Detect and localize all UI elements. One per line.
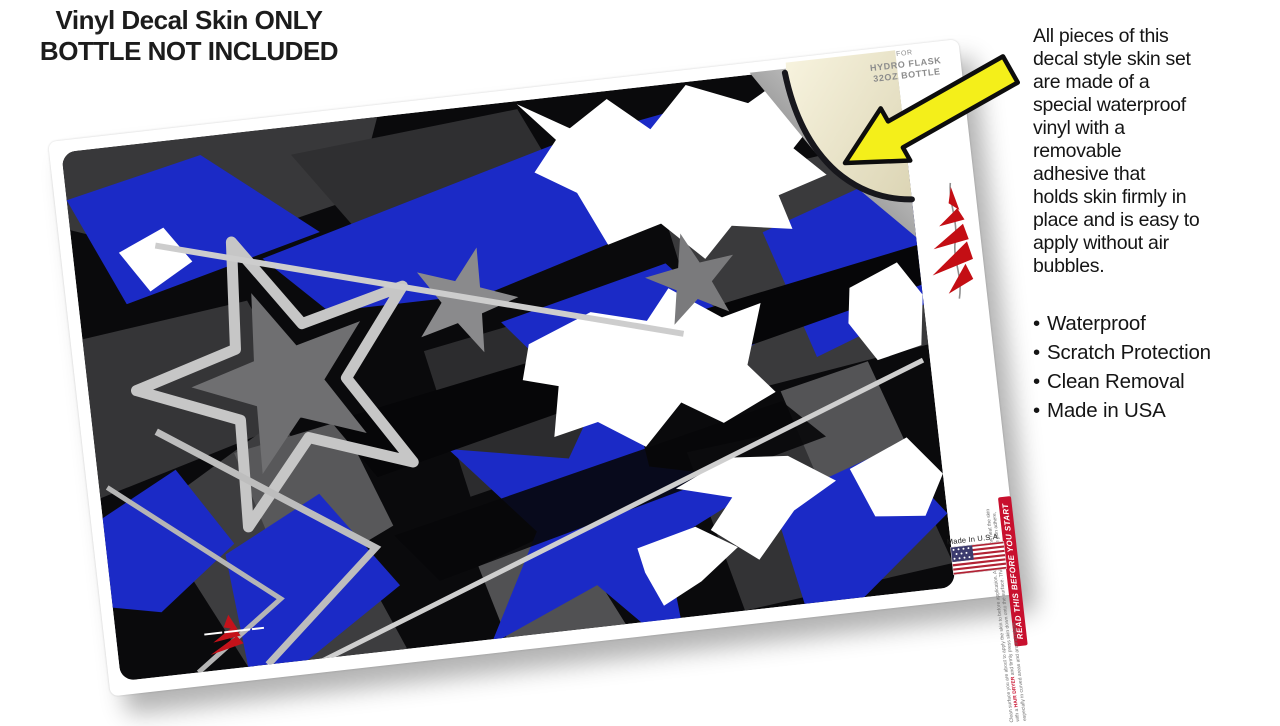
- feature-list: Waterproof Scratch Protection Clean Remo…: [1033, 309, 1275, 425]
- info-column: All pieces of this decal style skin set …: [1033, 25, 1275, 425]
- feature-item: Waterproof: [1033, 309, 1275, 338]
- product-image: Vinyl Decal Skin ONLY BOTTLE NOT INCLUDE…: [0, 0, 1280, 726]
- callout-arrow-icon: [820, 40, 1045, 195]
- description-text: All pieces of this decal style skin set …: [1033, 25, 1275, 278]
- feature-item: Clean Removal: [1033, 367, 1275, 396]
- headline-line2: BOTTLE NOT INCLUDED: [14, 36, 364, 67]
- red-claw-mini-logo-icon: [198, 605, 282, 658]
- headline-line1: Vinyl Decal Skin ONLY: [14, 5, 364, 36]
- feature-item: Scratch Protection: [1033, 338, 1275, 367]
- headline: Vinyl Decal Skin ONLY BOTTLE NOT INCLUDE…: [14, 5, 364, 67]
- feature-item: Made in USA: [1033, 396, 1275, 425]
